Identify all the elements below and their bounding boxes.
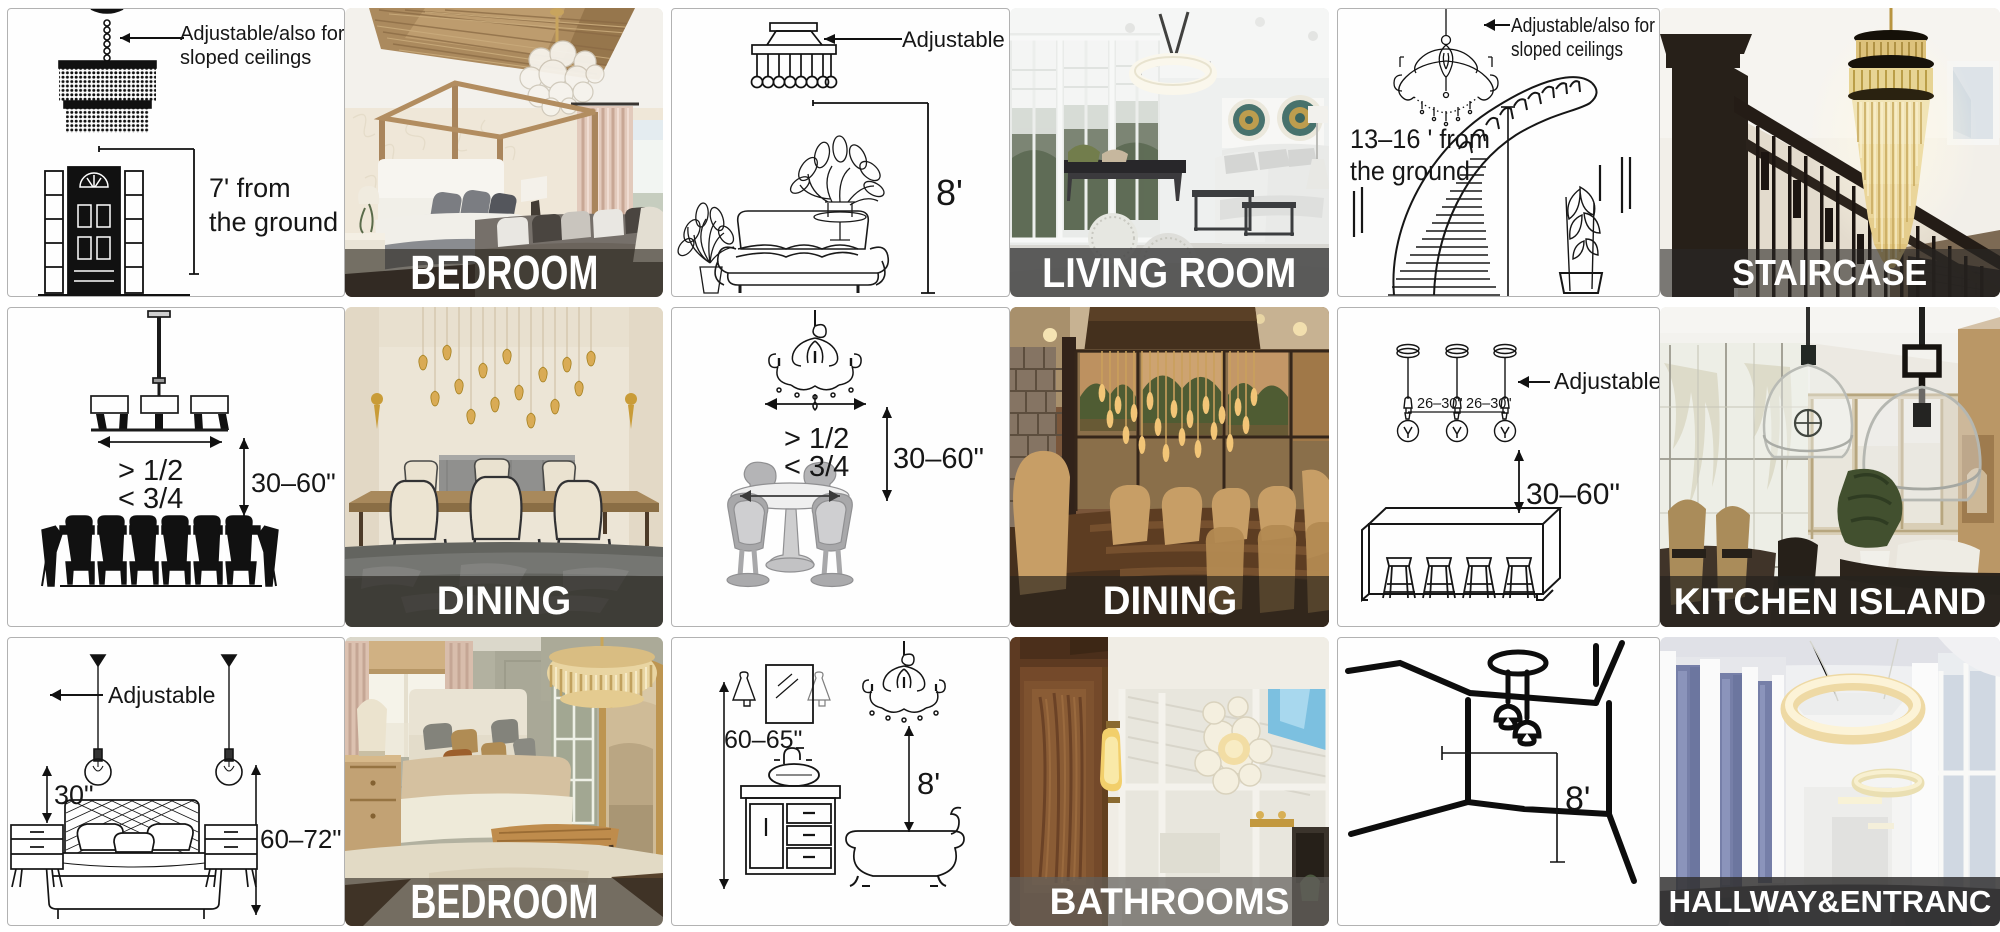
svg-text:8': 8' — [1565, 780, 1590, 818]
svg-text:26–30": 26–30" — [1466, 396, 1511, 412]
svg-text:60–72": 60–72" — [260, 824, 342, 854]
svg-text:13–16 ' from: 13–16 ' from — [1350, 124, 1490, 154]
svg-text:Adjustable/also for: Adjustable/also for — [180, 23, 344, 45]
svg-text:60–65": 60–65" — [724, 726, 802, 754]
svg-text:26–30": 26–30" — [1417, 396, 1462, 412]
svg-text:7' from: 7' from — [209, 173, 291, 203]
svg-text:Adjustable: Adjustable — [108, 682, 215, 708]
svg-text:< 3/4: < 3/4 — [118, 483, 183, 515]
svg-text:8': 8' — [917, 766, 940, 801]
svg-text:the ground: the ground — [209, 207, 338, 237]
svg-text:Adjustable/also for: Adjustable/also for — [1511, 15, 1655, 37]
svg-text:< 3/4: < 3/4 — [784, 451, 849, 483]
svg-text:30": 30" — [54, 780, 94, 810]
svg-text:sloped ceilings: sloped ceilings — [1511, 39, 1623, 61]
svg-text:sloped ceilings: sloped ceilings — [180, 47, 311, 69]
svg-text:the ground: the ground — [1350, 156, 1470, 186]
svg-text:30–60": 30–60" — [1526, 478, 1620, 511]
svg-text:8': 8' — [936, 172, 963, 213]
svg-text:Adjustable: Adjustable — [902, 27, 1005, 52]
svg-text:Adjustable: Adjustable — [1554, 368, 1659, 394]
svg-text:30–60": 30–60" — [251, 468, 336, 498]
svg-text:30–60": 30–60" — [893, 443, 984, 475]
